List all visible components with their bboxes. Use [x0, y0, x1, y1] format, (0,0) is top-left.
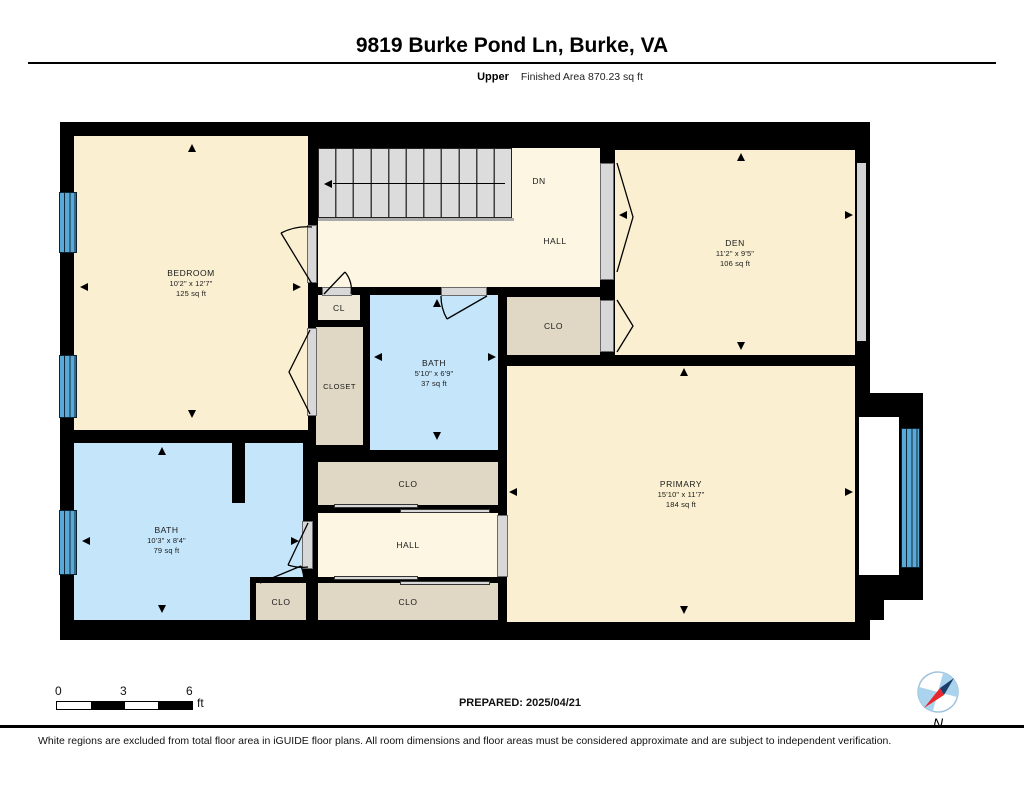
stair-direction-label: DN — [527, 176, 551, 186]
room-bath-upper: BATH 5'10" x 6'9" 37 sq ft — [370, 295, 498, 450]
bay-window — [901, 428, 920, 568]
room-den: DEN 11'2" x 9'5" 106 sq ft — [615, 150, 855, 355]
dimension-arrow-icon — [293, 283, 301, 291]
room-label: DEN 11'2" x 9'5" 106 sq ft — [716, 238, 754, 268]
dimension-arrow-icon — [680, 368, 688, 376]
dimension-arrow-icon — [433, 432, 441, 440]
room-label: CL — [333, 303, 345, 313]
dimension-arrow-icon — [845, 488, 853, 496]
room-label: CLO — [544, 321, 563, 331]
room-label: BATH 5'10" x 6'9" 37 sq ft — [415, 358, 454, 388]
scale-bar-segments — [56, 701, 193, 710]
door-jamb — [322, 287, 352, 296]
scale-tick: 3 — [120, 684, 127, 698]
partition-wall — [232, 443, 245, 503]
bath-window — [59, 510, 77, 575]
room-closet: CLOSET — [316, 327, 363, 445]
sliding-door — [400, 509, 490, 513]
hall-upper-label: HALL — [530, 236, 580, 246]
dimension-arrow-icon — [188, 410, 196, 418]
dimension-arrow-icon — [158, 605, 166, 613]
dimension-arrow-icon — [188, 144, 196, 152]
dimension-arrow-icon — [82, 537, 90, 545]
dimension-arrow-icon — [619, 211, 627, 219]
room-clo-hall-upper: CLO — [318, 462, 498, 505]
scale-tick: 6 — [186, 684, 193, 698]
room-clo-small: CLO — [256, 583, 306, 620]
door-jamb — [302, 521, 313, 569]
door-jamb — [441, 287, 487, 296]
room-label: BATH 10'3" x 8'4" 79 sq ft — [147, 525, 186, 555]
room-label: CLO — [398, 597, 417, 607]
scale-tick: 0 — [55, 684, 62, 698]
dimension-arrow-icon — [737, 342, 745, 350]
dimension-arrow-icon — [680, 606, 688, 614]
room-hall-lower: HALL — [318, 513, 498, 577]
dimension-arrow-icon — [509, 488, 517, 496]
disclaimer-text: White regions are excluded from total fl… — [38, 735, 998, 747]
scale-unit: ft — [197, 696, 204, 710]
stair-shadow — [318, 218, 514, 221]
bedroom-window — [59, 355, 77, 418]
prepared-date: PREPARED: 2025/04/21 — [420, 697, 620, 709]
floor-plan-page: 9819 Burke Pond Ln, Burke, VA Upper Fini… — [0, 0, 1024, 791]
door-jamb — [307, 328, 317, 416]
scale-bar: 0 3 6 ft — [55, 684, 225, 712]
door-jamb — [497, 515, 508, 577]
compass: N — [912, 668, 964, 732]
dimension-arrow-icon — [488, 353, 496, 361]
stair-down-arrow-icon — [324, 180, 332, 188]
room-bedroom: BEDROOM 10'2" x 12'7" 125 sq ft — [74, 136, 308, 430]
sliding-door — [400, 581, 490, 585]
dimension-arrow-icon — [374, 353, 382, 361]
room-label: PRIMARY 15'10" x 11'7" 184 sq ft — [658, 479, 705, 509]
room-cl: CL — [318, 295, 360, 320]
bay-notch — [884, 600, 923, 620]
compass-rose-icon: N — [912, 668, 964, 732]
room-label: BEDROOM 10'2" x 12'7" 125 sq ft — [167, 268, 215, 298]
room-label: CLOSET — [323, 382, 356, 391]
room-label: HALL — [396, 540, 419, 550]
floor-plan: BEDROOM 10'2" x 12'7" 125 sq ft DN HALL … — [0, 0, 1024, 791]
sliding-door — [334, 504, 418, 508]
sliding-door — [334, 576, 418, 580]
dimension-arrow-icon — [158, 447, 166, 455]
door-jamb — [600, 163, 614, 280]
room-label: CLO — [398, 479, 417, 489]
dimension-arrow-icon — [845, 211, 853, 219]
den-opening-strip — [857, 163, 866, 341]
bedroom-window — [59, 192, 77, 253]
dimension-arrow-icon — [80, 283, 88, 291]
footer-rule — [0, 725, 1024, 728]
compass-north-label: N — [933, 715, 944, 731]
dimension-arrow-icon — [737, 153, 745, 161]
room-clo-hall-lower: CLO — [318, 583, 498, 620]
door-jamb — [600, 300, 614, 352]
room-primary: PRIMARY 15'10" x 11'7" 184 sq ft — [507, 366, 855, 622]
bay-nook — [857, 415, 901, 577]
room-clo-mid: CLO — [507, 297, 600, 355]
dimension-arrow-icon — [433, 299, 441, 307]
door-jamb — [307, 225, 317, 283]
stair-run-line — [333, 183, 505, 184]
dimension-arrow-icon — [291, 537, 299, 545]
room-label: CLO — [271, 597, 290, 607]
